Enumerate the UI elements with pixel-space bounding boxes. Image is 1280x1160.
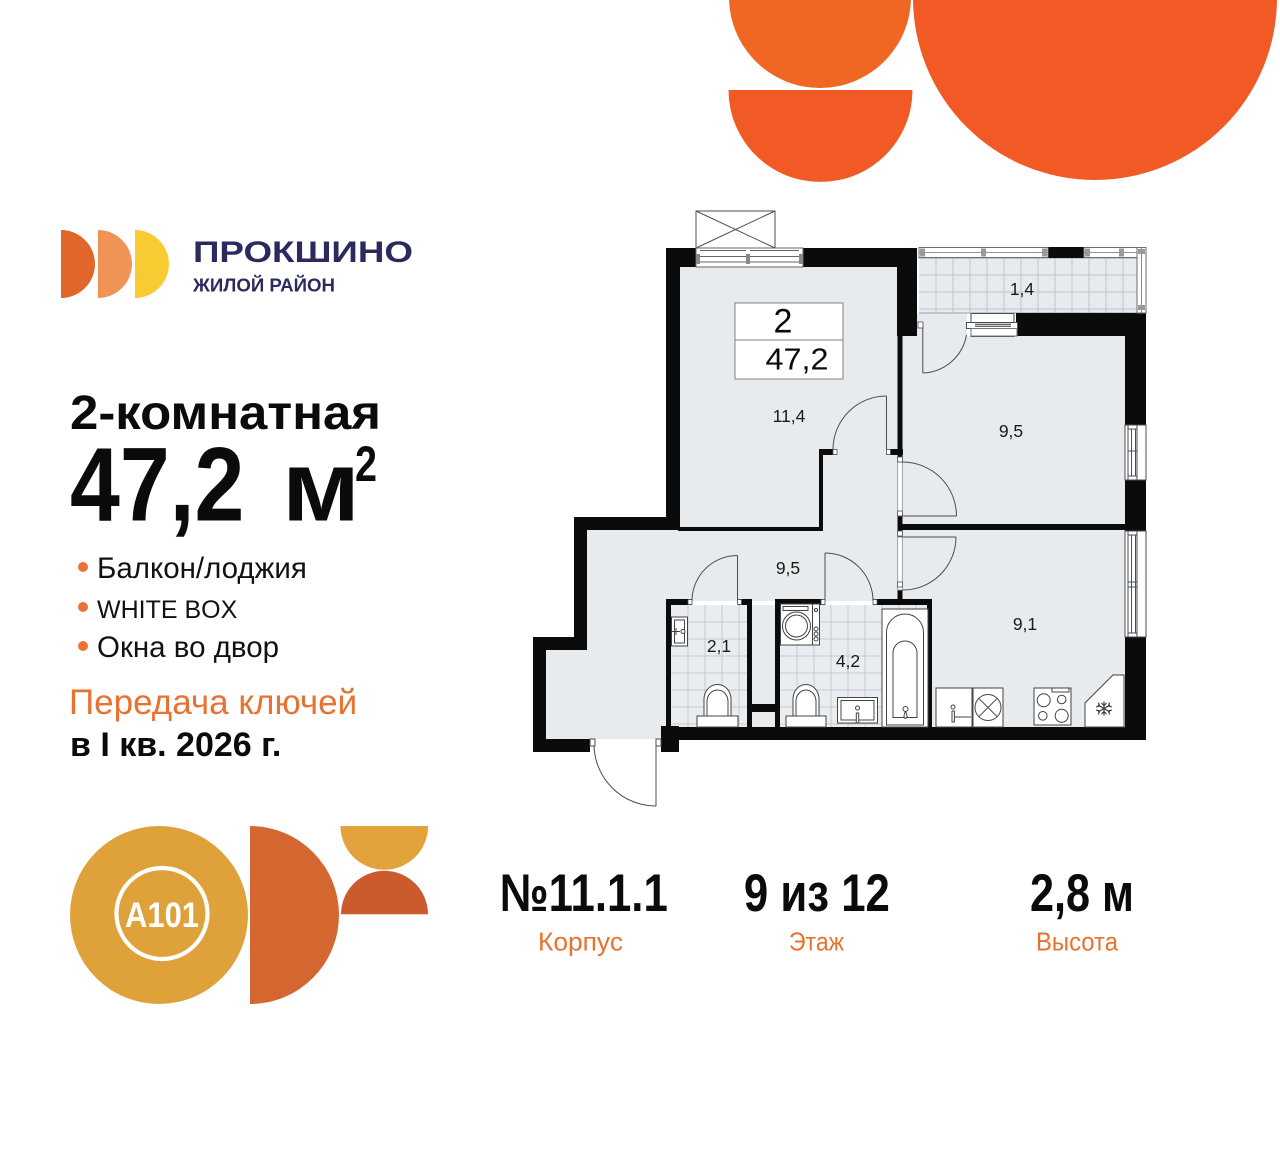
svg-text:1,4: 1,4	[1010, 279, 1035, 299]
svg-text:2,1: 2,1	[707, 636, 731, 656]
svg-text:11,4: 11,4	[773, 406, 806, 426]
svg-text:2: 2	[774, 303, 793, 341]
svg-text:4,2: 4,2	[836, 651, 860, 671]
svg-text:9,5: 9,5	[776, 558, 800, 578]
svg-text:9,1: 9,1	[1013, 614, 1037, 634]
svg-text:9,5: 9,5	[999, 421, 1023, 441]
svg-text:47,2: 47,2	[766, 342, 829, 377]
